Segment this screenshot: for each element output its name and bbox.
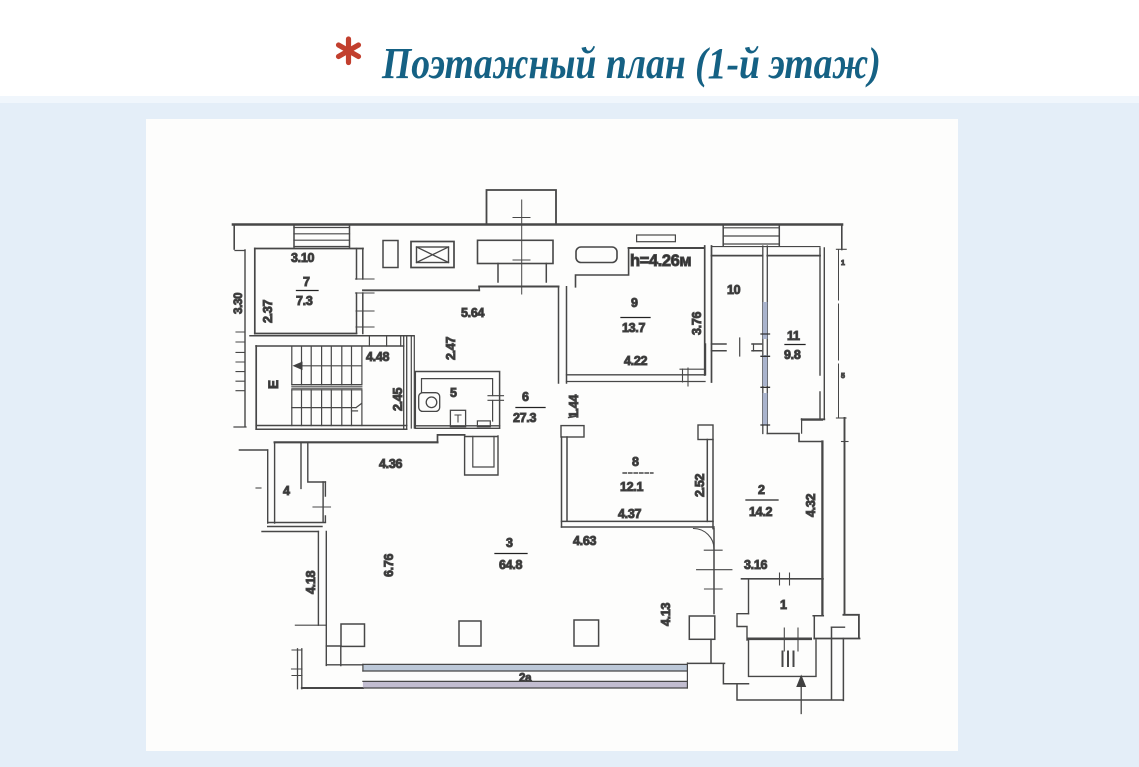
svg-text:7: 7 <box>303 275 310 289</box>
svg-text:h=4.26м: h=4.26м <box>630 252 691 270</box>
svg-text:4.37: 4.37 <box>618 507 641 521</box>
svg-text:6.76: 6.76 <box>382 554 396 577</box>
svg-text:4.63: 4.63 <box>573 534 596 548</box>
svg-text:27.3: 27.3 <box>513 411 536 425</box>
svg-text:1.44: 1.44 <box>567 395 581 418</box>
svg-text:64.8: 64.8 <box>499 558 522 572</box>
svg-text:4.48: 4.48 <box>366 350 389 364</box>
svg-text:5.64: 5.64 <box>461 306 484 320</box>
svg-text:2.37: 2.37 <box>261 300 275 323</box>
svg-text:3.16: 3.16 <box>744 558 767 572</box>
svg-text:2: 2 <box>758 483 765 497</box>
svg-text:3.76: 3.76 <box>690 312 704 335</box>
svg-text:2.45: 2.45 <box>391 388 405 411</box>
svg-text:8: 8 <box>632 455 639 469</box>
svg-text:14.2: 14.2 <box>749 505 772 519</box>
svg-text:E: E <box>266 380 281 389</box>
svg-text:3.30: 3.30 <box>233 293 245 314</box>
svg-text:12.1: 12.1 <box>620 480 643 494</box>
svg-text:2a: 2a <box>519 673 532 685</box>
svg-text:9.8: 9.8 <box>784 348 801 362</box>
svg-text:2.47: 2.47 <box>444 337 458 360</box>
svg-text:11: 11 <box>787 329 800 343</box>
svg-text:1: 1 <box>780 598 787 612</box>
svg-text:9: 9 <box>631 296 638 310</box>
svg-text:7.3: 7.3 <box>296 294 313 308</box>
svg-text:4.13: 4.13 <box>659 603 673 626</box>
svg-text:3: 3 <box>506 536 513 550</box>
svg-text:5: 5 <box>450 386 457 400</box>
svg-text:1: 1 <box>841 260 845 267</box>
svg-text:4: 4 <box>283 484 290 498</box>
svg-text:4.36: 4.36 <box>379 457 402 471</box>
svg-text:10: 10 <box>727 283 741 297</box>
svg-text:5: 5 <box>841 373 845 380</box>
svg-text:3.10: 3.10 <box>291 251 314 265</box>
svg-text:2.52: 2.52 <box>693 474 707 497</box>
svg-text:4.18: 4.18 <box>304 571 318 594</box>
svg-text:13.7: 13.7 <box>622 321 645 335</box>
svg-text:4.32: 4.32 <box>804 494 818 517</box>
svg-text:4.22: 4.22 <box>624 354 647 368</box>
svg-text:6: 6 <box>522 390 529 404</box>
